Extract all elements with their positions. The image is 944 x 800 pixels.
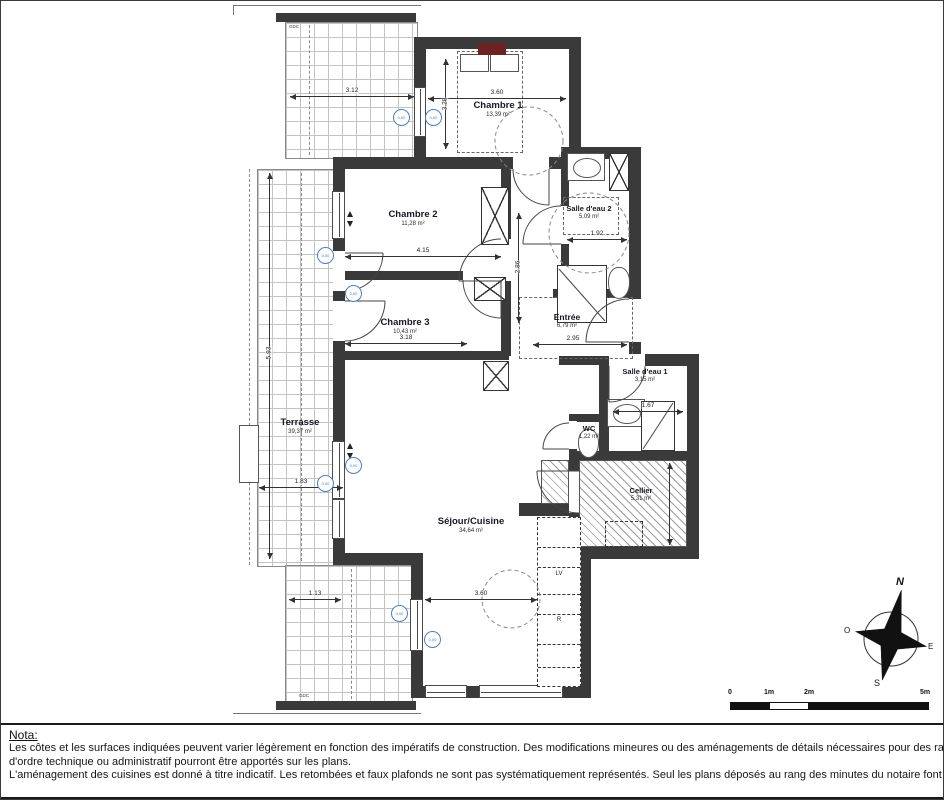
dim-label: 1.67 [642,402,655,409]
dim-label: 2.95 [567,335,580,342]
scale-segment-white [769,702,809,710]
dim-line [269,173,270,559]
level-marker: 0,00 [424,631,441,648]
level-marker: 0,00 [391,605,408,622]
compass-icon [844,576,944,694]
room-label-chambre2: Chambre 2 11,28 m² [388,209,437,227]
scale-bar: 0 1m 2m 5m [721,681,941,713]
nota-line-2: d'ordre technique ou administratif pourr… [9,756,935,770]
level-marker: 0,00 [345,457,362,474]
dim-label: 4.15 [417,247,430,254]
dishwasher-label: LV [556,571,563,577]
nota-line-1: Les côtes et les surfaces indiquées peuv… [9,742,935,756]
dim-line [289,599,341,600]
dim-line [567,239,627,240]
dim-label: 5.93 [266,347,273,360]
room-label-sejour: Séjour/Cuisine 34,64 m² [438,516,505,534]
scale-segment-black [730,702,769,710]
dim-line [425,599,537,600]
dim-label: 3.28 [442,98,449,111]
gdc-label-bottom: GDC [299,693,309,698]
scale-tick-1m: 1m [764,689,774,696]
level-marker: 0,00 [317,247,334,264]
nota-title: Nota: [9,728,935,742]
dim-label: 1.13 [309,590,322,597]
room-label-sde1: Salle d'eau 1 3,15 m² [622,367,667,383]
dim-label: 1.83 [295,478,308,485]
nota-block: Nota: Les côtes et les surfaces indiquée… [1,723,943,799]
dim-line [290,96,414,97]
room-label-wc: WC 1,22 m² [579,424,599,440]
dim-label: 3.18 [400,334,413,341]
dim-label: 3.12 [346,87,359,94]
scale-tick-2m: 2m [804,689,814,696]
room-label-chambre1: Chambre 1 13,39 m² [473,100,522,118]
dim-line [345,343,467,344]
dim-label: 3.60 [491,89,504,96]
dim-line [533,344,627,345]
dim-line [669,463,670,545]
room-label-entree: Entrée 6,79 m² [554,312,580,329]
gdc-label-top: GDC [289,24,299,29]
compass-north-label: N [896,576,904,588]
room-label-terrasse: Terrasse 39,37 m² [281,417,320,435]
room-label-sde2: Salle d'eau 2 5,09 m² [566,204,611,220]
floor-plan-page: GDC GDC [0,0,944,800]
level-marker: 0,00 [345,285,362,302]
dim-line [613,411,683,412]
scale-tick-5m: 5m [920,689,930,696]
scale-tick-0: 0 [728,689,732,696]
fridge-label: R [557,617,561,623]
dim-label: 3.60 [475,590,488,597]
compass-west-label: O [844,626,850,635]
compass-rose: N E S O [844,576,944,694]
room-label-chambre3: Chambre 3 10,43 m² [380,317,429,335]
compass-east-label: E [928,642,933,651]
dim-line [345,256,501,257]
scale-segment-black [809,702,929,710]
level-marker: 0,00 [393,109,410,126]
dim-line [428,98,566,99]
room-label-cellier: Cellier 5,31 m² [630,486,653,502]
level-marker: 0,00 [317,475,334,492]
nota-line-3: L'aménagement des cuisines est donné à t… [9,769,935,783]
dim-label: 1.92 [591,230,604,237]
dim-label: 2.86 [515,261,522,274]
level-marker: 0,00 [425,109,442,126]
